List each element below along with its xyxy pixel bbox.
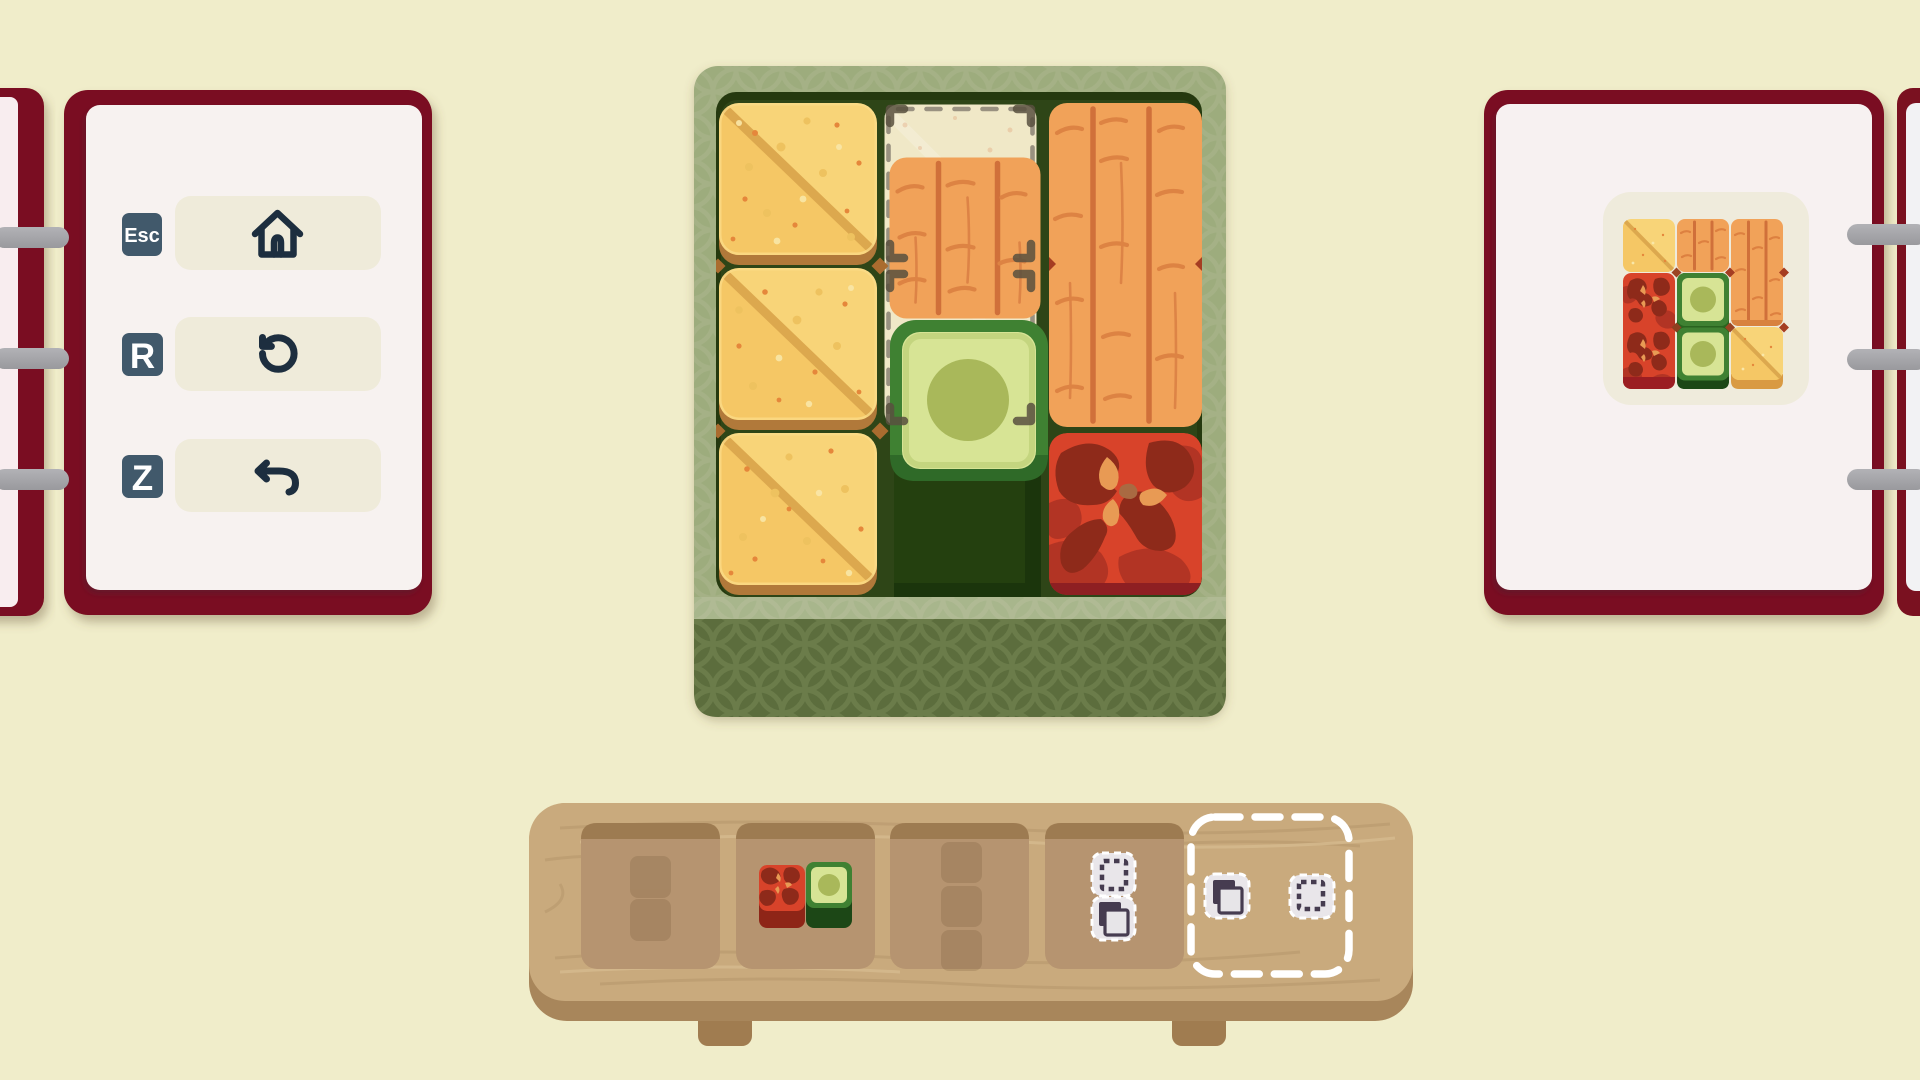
svg-text:Z: Z: [132, 459, 153, 498]
svg-text:R: R: [130, 337, 155, 376]
svg-text:Esc: Esc: [124, 225, 160, 247]
